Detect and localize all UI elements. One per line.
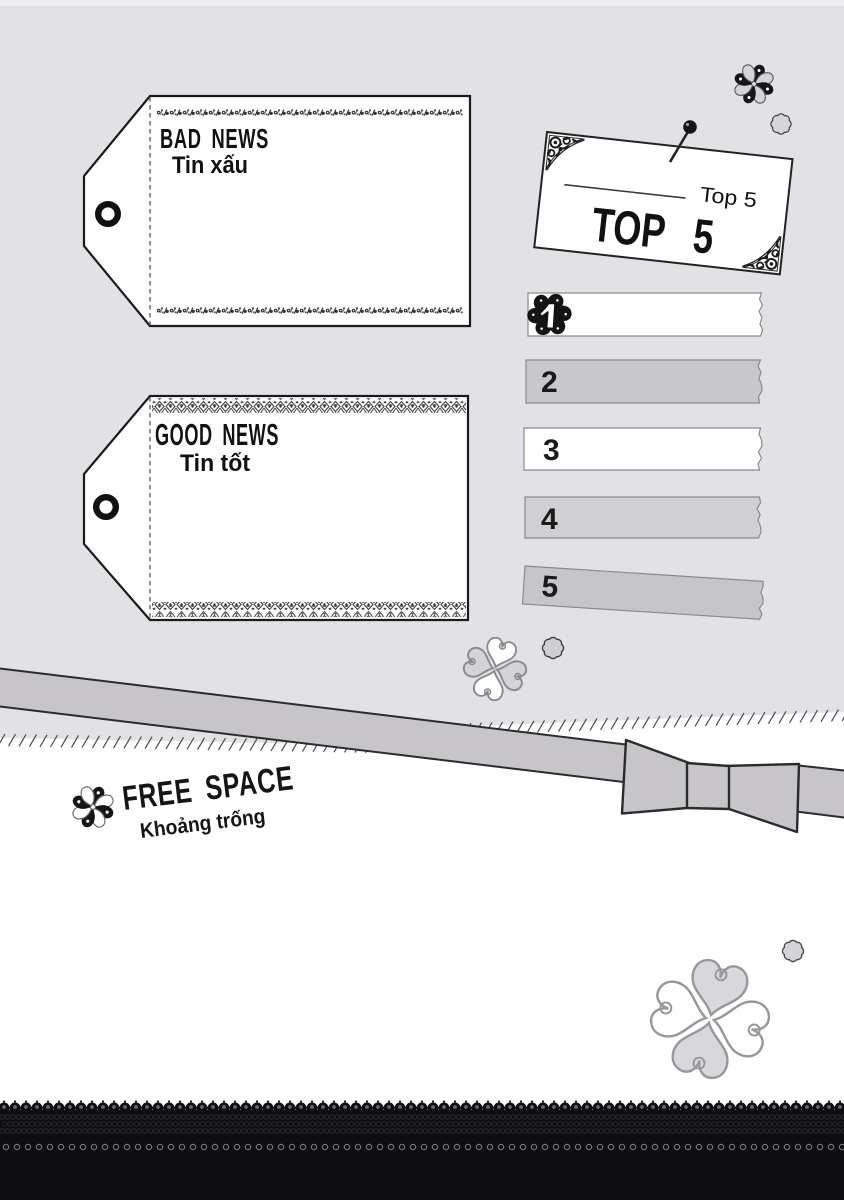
- svg-text:Tin tốt: Tin tốt: [180, 450, 250, 477]
- svg-text:GOOD NEWS: GOOD NEWS: [155, 417, 279, 452]
- svg-text:5: 5: [541, 570, 560, 604]
- svg-text:Tin xấu: Tin xấu: [172, 152, 248, 179]
- svg-text:3: 3: [543, 434, 560, 467]
- svg-text:BAD NEWS: BAD NEWS: [160, 123, 269, 154]
- svg-text:4: 4: [541, 503, 558, 536]
- svg-text:2: 2: [541, 366, 558, 399]
